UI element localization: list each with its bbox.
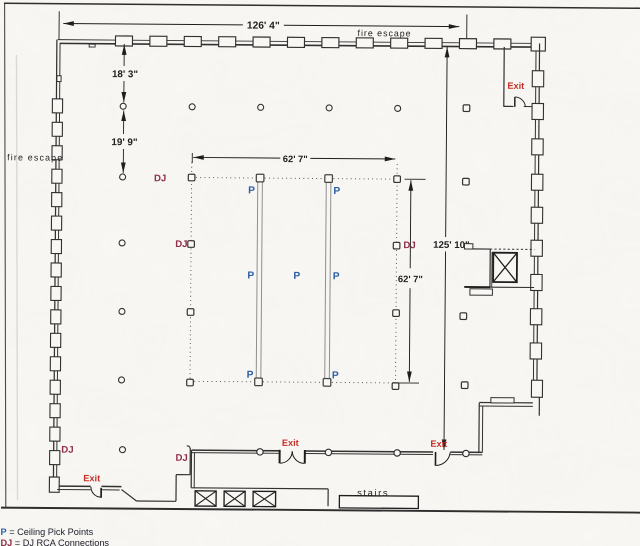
svg-text:fire escape: fire escape (7, 152, 63, 162)
svg-text:DJ = DJ RCA Connections: DJ = DJ RCA Connections (1, 538, 110, 546)
svg-text:DJ: DJ (175, 239, 187, 250)
svg-text:DJ: DJ (175, 453, 187, 464)
svg-text:P: P (332, 370, 339, 381)
svg-text:DJ: DJ (403, 240, 415, 251)
svg-text:P: P (248, 185, 255, 196)
svg-text:Exit: Exit (282, 438, 299, 448)
svg-text:62' 7": 62' 7" (398, 273, 423, 284)
svg-text:P: P (247, 271, 254, 282)
svg-text:fire escape: fire escape (357, 28, 411, 38)
svg-text:P = Ceiling Pick Points: P = Ceiling Pick Points (1, 527, 94, 537)
svg-text:126' 4": 126' 4" (247, 21, 280, 32)
svg-text:P: P (333, 186, 340, 197)
svg-text:P: P (333, 271, 340, 282)
svg-text:P: P (247, 370, 254, 381)
svg-text:DJ: DJ (61, 445, 73, 456)
svg-text:P: P (293, 271, 300, 282)
svg-text:Exit: Exit (507, 81, 524, 91)
svg-text:62' 7": 62' 7" (283, 153, 308, 164)
svg-text:Exit: Exit (83, 473, 100, 483)
svg-text:stairs: stairs (357, 487, 389, 498)
svg-text:Exit: Exit (430, 439, 447, 449)
svg-text:19' 9": 19' 9" (111, 137, 137, 148)
svg-text:18' 3": 18' 3" (112, 69, 138, 80)
svg-text:DJ: DJ (154, 173, 166, 184)
